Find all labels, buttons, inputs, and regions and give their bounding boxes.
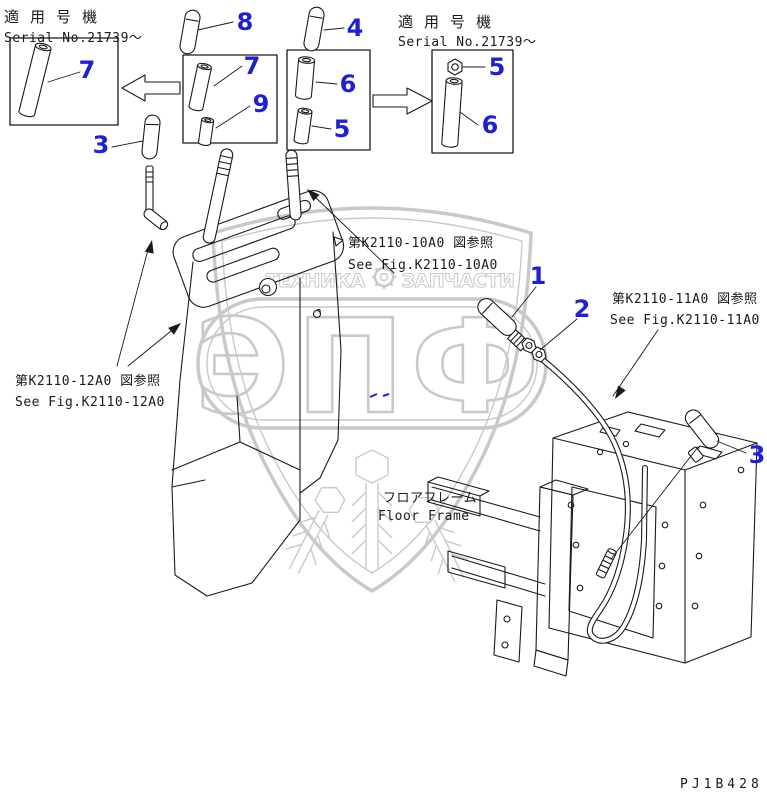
callout-7-box1: 7 — [79, 56, 96, 84]
callout-5-box4: 5 — [489, 53, 506, 81]
grip-8 — [179, 9, 201, 55]
rod-threaded-stud — [596, 548, 617, 579]
pin-7-box2 — [188, 62, 212, 111]
console-lever-right — [286, 150, 302, 221]
callout-3-right: 3 — [749, 441, 766, 469]
callout-8: 8 — [237, 8, 254, 36]
grip-4 — [303, 6, 325, 52]
header-right-serial: Serial No.21739～ — [398, 35, 536, 50]
drawing-code: PJ1B428 — [680, 777, 763, 792]
ref-fig-k2110-12a0-en: See Fig.K2110-12A0 — [15, 395, 165, 410]
ref-fig-k2110-10a0-en: See Fig.K2110-10A0 — [348, 258, 498, 273]
handle-3-right — [682, 407, 722, 463]
watermark-tagline-left: ТЕХНИКА — [265, 270, 365, 292]
header-left-serial: Serial No.21739～ — [4, 31, 142, 46]
callout-7-box2: 7 — [244, 52, 261, 80]
block-arrow-left-icon — [122, 75, 180, 101]
ref-fig-k2110-11a0-en: See Fig.K2110-11A0 — [610, 313, 760, 328]
control-rod-tube — [538, 356, 645, 641]
header-left-kanji: 適 用 号 機 — [4, 8, 98, 26]
ref-fig-k2110-12a0-jp: 第K2110-12A0 図参照 — [15, 373, 161, 389]
watermark-tagline-right: ЗАПЧАСТИ — [402, 270, 515, 292]
nut-5-box4 — [448, 59, 462, 75]
callout-6-box4: 6 — [482, 111, 499, 139]
callout-1: 1 — [530, 262, 547, 290]
wheat-left — [279, 480, 352, 579]
callout-6-box3: 6 — [340, 70, 357, 98]
ref-fig-k2110-11a0-jp: 第K2110-11A0 図参照 — [612, 291, 758, 307]
callout-2: 2 — [574, 295, 591, 323]
floor-frame-label-en: Floor Frame — [378, 509, 470, 524]
pin-6-box4 — [442, 77, 463, 147]
callout-4: 4 — [347, 14, 364, 42]
callout-5-box3: 5 — [334, 115, 351, 143]
header-right-kanji: 適 用 号 機 — [398, 13, 492, 31]
ref-fig-k2110-10a0-jp: 第K2110-10A0 図参照 — [348, 235, 494, 251]
parts-diagram: ЭПФ ТЕХНИКА ЗАПЧАСТИ — [0, 0, 767, 793]
pin-6-box3 — [295, 56, 315, 100]
pin-7-box1 — [18, 42, 52, 118]
pin-9-box2 — [198, 117, 214, 146]
callout-3-left: 3 — [93, 131, 110, 159]
floor-frame-label-jp: フロアフレーム — [383, 491, 477, 506]
grip-3-left — [141, 114, 161, 159]
l-shaped-lever-rod — [142, 166, 169, 231]
callout-9: 9 — [253, 90, 270, 118]
pin-5-box3 — [294, 107, 313, 144]
block-arrow-right-icon — [373, 88, 432, 114]
